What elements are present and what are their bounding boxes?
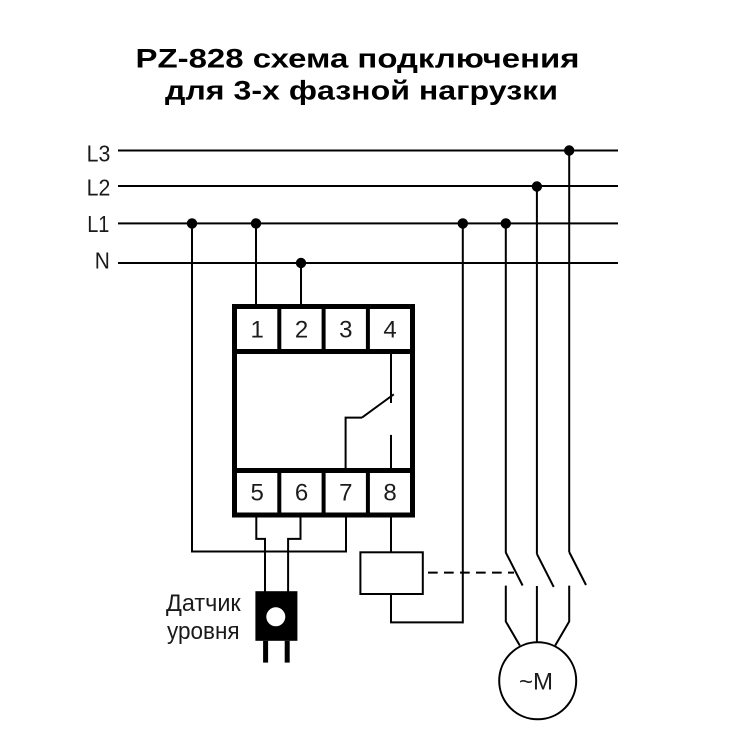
- svg-text:~M: ~M: [519, 669, 553, 696]
- svg-text:N: N: [95, 248, 110, 274]
- svg-text:7: 7: [339, 480, 352, 507]
- svg-text:уровня: уровня: [167, 618, 240, 645]
- svg-text:8: 8: [383, 480, 396, 507]
- svg-text:L2: L2: [87, 174, 111, 200]
- svg-text:L1: L1: [87, 211, 109, 237]
- svg-text:5: 5: [251, 480, 264, 507]
- svg-text:для 3-х фазной нагрузки: для 3-х фазной нагрузки: [165, 76, 558, 106]
- svg-text:L3: L3: [87, 141, 111, 167]
- svg-text:Датчик: Датчик: [166, 590, 241, 617]
- svg-text:2: 2: [295, 316, 308, 343]
- svg-text:3: 3: [339, 316, 352, 343]
- svg-text:6: 6: [295, 480, 308, 507]
- svg-text:PZ-828 схема подключения: PZ-828 схема подключения: [136, 44, 580, 74]
- svg-text:4: 4: [383, 316, 396, 343]
- svg-text:1: 1: [251, 316, 264, 343]
